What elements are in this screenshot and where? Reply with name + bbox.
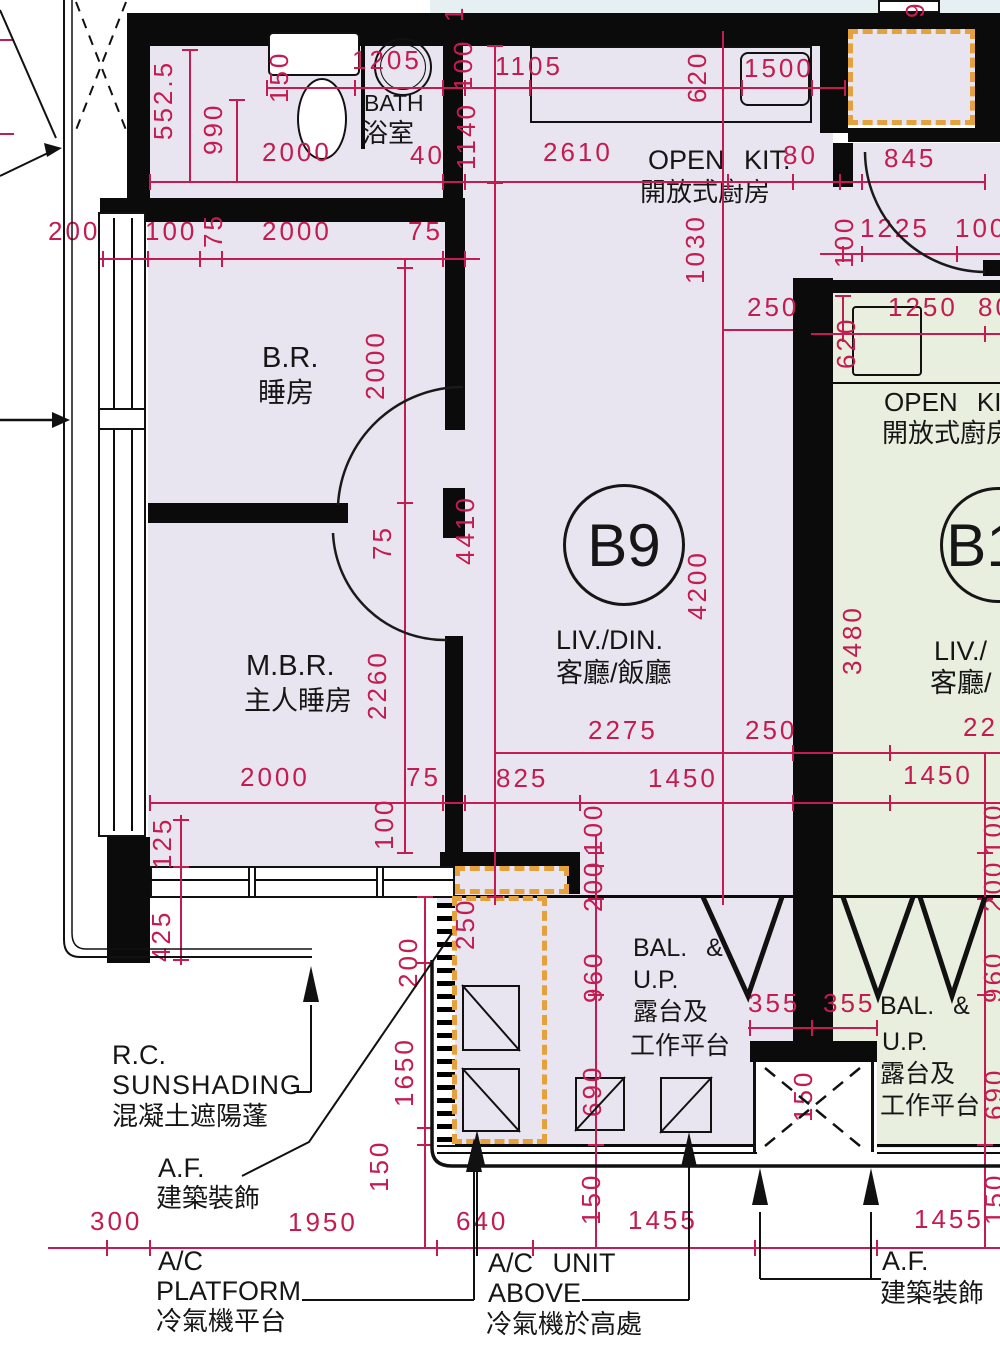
dim-partial-9: 9 — [902, 1, 928, 18]
unit-badge-b9: B9 — [563, 484, 685, 606]
br-label-en: B.R. — [262, 344, 318, 373]
openkit2-label-en: OPEN KIT — [884, 389, 1000, 415]
af2-label-zh: 建築裝飾 — [880, 1280, 984, 1306]
br-label-zh: 睡房 — [258, 379, 314, 407]
line-b10-balcony-top — [833, 895, 1000, 898]
dim-1105: 1105 — [495, 53, 563, 79]
dim-425: 425 — [148, 910, 174, 962]
dim-1650: 1650 — [391, 1037, 417, 1107]
corner-leaders — [0, 10, 56, 176]
dim-825: 825 — [496, 765, 548, 791]
dim-1950: 1950 — [288, 1209, 358, 1235]
dim-75-mid: 75 — [369, 525, 395, 560]
dim-2610: 2610 — [543, 139, 613, 165]
dim-2275-b10-clip: 22 — [963, 714, 998, 740]
topleft-window-x — [76, 2, 126, 130]
dim-200-left: 200 — [48, 218, 100, 244]
liv2-label-en: LIV./ — [934, 638, 987, 665]
dim-1030: 1030 — [682, 214, 708, 284]
window-band-left — [98, 212, 146, 837]
window-band-bottom — [150, 866, 455, 898]
dim-1250: 1250 — [888, 294, 958, 320]
dim-690-redge: 690 — [981, 1068, 1000, 1120]
dim-1205: 1205 — [352, 47, 422, 73]
bal2-label-3: 露台及 — [880, 1062, 955, 1087]
dim-3480: 3480 — [839, 605, 865, 675]
dim-2260: 2260 — [364, 650, 390, 720]
unit-b9-label: B9 — [587, 511, 660, 580]
dim-75-top-rot: 75 — [200, 213, 226, 248]
dim-2000-br: 2000 — [262, 218, 332, 244]
dim-552-5: 552.5 — [150, 60, 176, 140]
dim-2000-mbr: 2000 — [240, 764, 310, 790]
rc-label-1: R.C. — [112, 1042, 166, 1069]
rc-arrowhead — [303, 966, 319, 1002]
acu-label-2: ABOVE — [488, 1280, 581, 1307]
dim-960-redge: 960 — [980, 951, 1000, 1003]
af1-label-en: A.F. — [158, 1155, 205, 1182]
dim-250-af: 250 — [452, 898, 478, 950]
dim-2000-bath: 2000 — [262, 139, 332, 165]
dim-1140: 1140 — [453, 102, 479, 170]
wall-door-stub2 — [983, 260, 1000, 276]
wall-party — [793, 278, 833, 1041]
bal2-label-1: BAL. & — [880, 994, 970, 1019]
dim-960: 960 — [580, 951, 606, 1003]
dim-100-lobby-v: 100 — [831, 216, 857, 268]
wall-lobby-left — [820, 13, 848, 133]
dim-40: 40 — [410, 142, 445, 168]
dim-75-br: 75 — [408, 218, 443, 244]
wall-door-stub — [833, 143, 853, 187]
livdin-label-en: LIV./DIN. — [556, 627, 663, 654]
dim-150-bal: 150 — [578, 1173, 604, 1225]
openkit-label-zh: 開放式廚房 — [640, 179, 770, 205]
rc-label-3: 混凝土遮陽蓬 — [112, 1103, 268, 1129]
af1-label-zh: 建築裝飾 — [156, 1185, 260, 1211]
bal1-label-2: U.P. — [633, 968, 678, 993]
dim-620-kit: 620 — [684, 51, 710, 103]
window-glass-left-2 — [131, 218, 133, 831]
dim-150-shaft: 150 — [790, 1070, 816, 1122]
dim-100-lobby: 100 — [955, 215, 1000, 241]
dim-845: 845 — [884, 145, 936, 171]
dim-200-bal: 200 — [580, 860, 606, 912]
dim-150-toilet: 150 — [266, 51, 292, 103]
livdin-label-zh: 客廳/飯廳 — [556, 660, 672, 687]
dim-990: 990 — [200, 103, 226, 155]
acu-label-1: A/C UNIT — [488, 1250, 616, 1277]
railing-b9-1 — [437, 1144, 757, 1147]
bal1-label-1: BAL. & — [633, 936, 723, 961]
floor-plan: B9 B1 BATH 浴室 OPEN KIT. 開放式廚房 B.R. 睡房 M.… — [0, 0, 1000, 1346]
wall-window-pier-bottom — [107, 837, 150, 963]
wall-lobby-bottom — [848, 128, 1000, 142]
liv2-label-zh: 客廳/ — [930, 670, 992, 697]
af-right-leader — [760, 1212, 881, 1279]
rc-label-2: SUNSHADING — [112, 1072, 302, 1099]
dim-100-mbr: 100 — [371, 798, 397, 850]
af-box-top — [848, 29, 975, 125]
af-arrowhead-1 — [752, 1168, 768, 1205]
wall-lobby-right — [975, 13, 1000, 133]
dim-250-liv: 250 — [745, 717, 797, 743]
dim-250-top: 250 — [747, 294, 799, 320]
dim-100-redge: 100 — [980, 803, 1000, 855]
openkit-label-en: OPEN KIT. — [648, 147, 791, 174]
dim-75-mbr: 75 — [406, 764, 441, 790]
af2-label-en: A.F. — [882, 1248, 929, 1275]
dim-300: 300 — [90, 1208, 142, 1234]
window-transom-left — [98, 408, 146, 430]
mbr-label-en: M.B.R. — [246, 652, 335, 681]
dim-1455-1: 1455 — [628, 1207, 698, 1233]
acp-label-3: 冷氣機平台 — [156, 1308, 286, 1334]
dim-150-ac: 150 — [366, 1140, 392, 1192]
dim-640: 640 — [456, 1208, 508, 1234]
dim-4200: 4200 — [684, 550, 710, 620]
ac-unit-4 — [660, 1077, 712, 1133]
dim-620-b10: 620 — [833, 317, 859, 369]
dim-1225: 1225 — [860, 215, 930, 241]
acp-label-2: PLATFORM — [156, 1278, 301, 1305]
west-arrowhead — [52, 412, 70, 428]
wall-br-right — [445, 222, 465, 430]
dim-100-bal: 100 — [580, 803, 606, 855]
dim-1455-2: 1455 — [914, 1206, 984, 1232]
window-mullion-2 — [376, 866, 384, 898]
dim-80-b10: 80 — [978, 294, 1000, 320]
dim-1450-b10: 1450 — [903, 762, 973, 788]
dim-355-1: 355 — [748, 990, 800, 1016]
bath-label-zh: 浴室 — [362, 120, 414, 146]
window-glass-left-1 — [113, 218, 115, 831]
mbr-label-zh: 主人睡房 — [244, 688, 352, 715]
unit-b10-label: B1 — [946, 511, 1000, 580]
dim-150-redge: 150 — [981, 1173, 1000, 1225]
dim-partial-1: 1 — [441, 5, 467, 22]
wall-shaft-top — [750, 1041, 877, 1062]
af-box-sill — [455, 866, 569, 894]
bath-label-en: BATH — [364, 92, 424, 115]
dim-1450: 1450 — [648, 765, 718, 791]
railing-b10-2 — [877, 1152, 1000, 1154]
dim-200-ac: 200 — [395, 936, 421, 988]
corner-arrowhead — [44, 143, 62, 157]
wall-liv-bottom — [440, 852, 580, 866]
dim-80: 80 — [783, 142, 818, 168]
window-glass-bottom — [150, 879, 455, 881]
dim-355-2: 355 — [823, 990, 875, 1016]
wall-top-left-vertical — [127, 13, 150, 212]
wall-br-mbr — [148, 503, 348, 523]
openkit2-label-zh: 開放式廚房 — [882, 420, 1000, 446]
dim-690: 690 — [579, 1065, 605, 1117]
dim-100-left: 100 — [145, 218, 197, 244]
railing-b9-2 — [437, 1152, 757, 1154]
bal2-label-4: 工作平台 — [880, 1094, 980, 1119]
dim-4410: 4410 — [452, 495, 478, 565]
dim-2000-br-v: 2000 — [362, 330, 388, 400]
bal1-label-4: 工作平台 — [630, 1034, 730, 1059]
bal2-label-2: U.P. — [882, 1030, 927, 1055]
acp-label-1: A/C — [158, 1248, 203, 1275]
bal1-label-3: 露台及 — [633, 1000, 708, 1025]
dim-1500: 1500 — [744, 55, 814, 81]
railing-b10-1 — [877, 1144, 1000, 1147]
af-arrowhead-2 — [863, 1168, 879, 1205]
dim-2275: 2275 — [588, 717, 658, 743]
dim-125: 125 — [149, 817, 175, 869]
dim-200-redge: 200 — [980, 860, 1000, 912]
wall-mbr-right — [445, 636, 463, 852]
line-b10-kitchen — [833, 382, 1000, 384]
acu-label-3: 冷氣機於高處 — [486, 1311, 642, 1337]
window-mullion-1 — [248, 866, 256, 898]
dim-100-bath: 100 — [450, 39, 476, 91]
